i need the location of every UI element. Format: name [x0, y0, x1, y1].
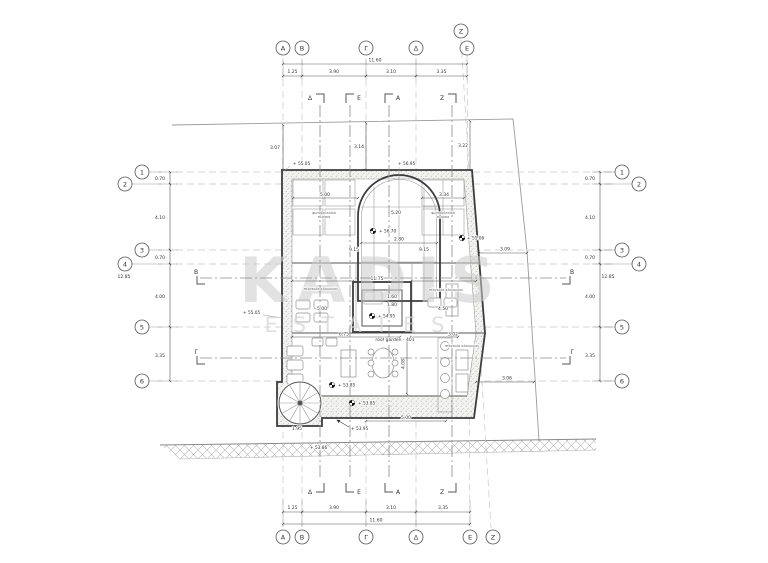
dim-bottom-2: 3.90: [329, 505, 339, 511]
dim-bottom-1: 1.25: [287, 505, 297, 511]
grid-row-6-right: 6: [620, 378, 624, 386]
dim-setback-right-2: 3.06: [502, 376, 512, 382]
level-mid-left: + 55.05: [243, 310, 261, 316]
grid-col-a-bottom: A: [281, 534, 286, 542]
grid-col-g-top: Γ: [364, 45, 368, 53]
dim-left-total: 12.85: [118, 274, 131, 280]
grid-row-3-right: 3: [620, 247, 624, 255]
grid-row-4-left: 4: [123, 261, 127, 269]
dim-setback-e: 3.22: [458, 143, 468, 149]
dim-core-height: 1.80: [387, 302, 397, 308]
dim-bottom-4: 3.35: [438, 505, 448, 511]
dim-room-right-bottom: 3.02: [448, 332, 458, 338]
architectural-roof-plan: KADIS ESTATES Δ E A Z Δ E A Z B B Γ Γ 11…: [0, 0, 768, 563]
dim-top-1: 1.25: [287, 69, 297, 75]
section-z-bottom: Z: [440, 489, 444, 496]
dim-core-width: 1.60: [387, 294, 397, 300]
dim-setback-g: 3.14: [354, 144, 364, 150]
dim-right-2: 4.10: [585, 215, 595, 221]
section-delta-bottom: Δ: [308, 489, 313, 496]
dim-inner-width: 11.75: [371, 276, 384, 282]
label-pv-left-2: πλαίσια: [318, 215, 330, 219]
dim-room-right: 4.50: [438, 306, 448, 312]
grid-row-3-left: 3: [140, 247, 144, 255]
grid-col-e-bottom: E: [468, 534, 472, 542]
label-pergola-left: πέργκολα αλουμινίου: [304, 287, 338, 291]
label-pergola-right: πέργκολα αλουμινίου: [429, 288, 463, 292]
dim-right-4: 4.00: [585, 294, 595, 300]
level-garden-b: + 53.85: [358, 401, 376, 407]
section-a-top: A: [396, 95, 401, 102]
grid-row-5-left: 5: [140, 324, 144, 332]
dim-spiral: 1.95: [292, 426, 302, 432]
dim-top-total: 11.60: [369, 58, 382, 64]
watermark-line2: ESTATES: [265, 313, 460, 337]
dim-pv-left: 5.00: [320, 192, 330, 198]
grid-row-5-right: 5: [620, 324, 624, 332]
dim-setback-right-1: 3.09: [500, 247, 510, 253]
grid-row-1-right: 1: [620, 169, 624, 177]
dim-pv-right: 3.34: [439, 192, 449, 198]
spiral-staircase: [278, 381, 323, 426]
grid-row-2-left: 2: [123, 181, 127, 189]
section-b-right: B: [570, 269, 574, 276]
dim-right-5: 3.35: [585, 353, 595, 359]
dim-vault-height: 5.20: [391, 210, 401, 216]
dim-bottom-strip: 5.00: [401, 415, 411, 421]
grid-col-z-bottom: Z: [491, 534, 496, 542]
section-e-top: E: [357, 95, 361, 102]
dim-side-left: 9.15: [349, 247, 359, 253]
dim-right-3: 0.70: [585, 255, 595, 261]
dim-right-1: 0.70: [585, 176, 595, 182]
section-a-bottom: A: [396, 489, 401, 496]
label-pv-right-2: πλαίσια: [437, 215, 449, 219]
benchmark-right: [459, 235, 465, 241]
level-garden-a: + 53.85: [338, 383, 356, 389]
grid-col-d-bottom: Δ: [414, 534, 419, 542]
grid-col-z-top: Z: [459, 28, 464, 36]
dim-top-4: 3.35: [436, 69, 446, 75]
dim-bottom-3: 3.10: [386, 505, 396, 511]
dim-garden-width: 6.75: [339, 332, 349, 338]
section-z-top: Z: [440, 95, 444, 102]
dim-right-total: 12.85: [602, 274, 615, 280]
section-e-bottom: E: [357, 489, 361, 496]
grid-col-d-top: Δ: [414, 45, 419, 53]
section-gamma-right: Γ: [570, 349, 574, 356]
dim-left-1: 0.70: [155, 176, 165, 182]
level-top-left: + 55.05: [293, 161, 311, 167]
level-strip: + 53.95: [351, 426, 369, 432]
level-vault: + 56.70: [379, 229, 397, 235]
label-pergola-bottom: πέργκολα αλουμινίου: [445, 344, 479, 348]
benchmark-vault: [370, 228, 376, 234]
dim-top-3: 3.10: [386, 69, 396, 75]
level-street: + 53.86: [310, 445, 328, 451]
dim-side-right: 9.15: [419, 247, 429, 253]
section-delta-top: Δ: [308, 95, 313, 102]
dim-setback-a: 3.07: [270, 145, 280, 151]
section-b-left: B: [194, 269, 198, 276]
dim-left-2: 4.10: [155, 215, 165, 221]
grid-row-4-right: 4: [637, 261, 641, 269]
grid-col-b-top: B: [300, 45, 304, 53]
dim-garden-height: 4.08: [401, 359, 407, 369]
grid-col-g-bottom: Γ: [364, 534, 368, 542]
grid-row-1-left: 1: [140, 169, 144, 177]
level-core: + 54.95: [378, 314, 396, 320]
dim-top-2: 3.90: [329, 69, 339, 75]
benchmark-garden-a: [329, 382, 335, 388]
dim-left-3: 0.70: [155, 255, 165, 261]
section-gamma-left: Γ: [194, 349, 198, 356]
level-mid-right: + 55.06: [467, 236, 485, 242]
grid-col-a-top: A: [281, 45, 286, 53]
dim-vault-width: 2.80: [394, 237, 404, 243]
grid-col-e-top: E: [465, 45, 469, 53]
grid-row-6-left: 6: [140, 378, 144, 386]
benchmark-core: [369, 313, 375, 319]
grid-col-b-bottom: B: [300, 534, 304, 542]
level-top-mid: + 56.95: [398, 161, 416, 167]
dim-room-left: 5.00: [317, 306, 327, 312]
grid-row-2-right: 2: [637, 181, 641, 189]
label-roof-garden: roof garden - 401: [375, 337, 414, 343]
dim-left-5: 3.35: [155, 353, 165, 359]
dim-left-4: 4.00: [155, 294, 165, 300]
floor-plan-canvas: KADIS ESTATES Δ E A Z Δ E A Z B B Γ Γ 11…: [0, 0, 768, 563]
dim-bottom-total: 11.60: [370, 518, 383, 524]
benchmark-garden-b: [349, 400, 355, 406]
